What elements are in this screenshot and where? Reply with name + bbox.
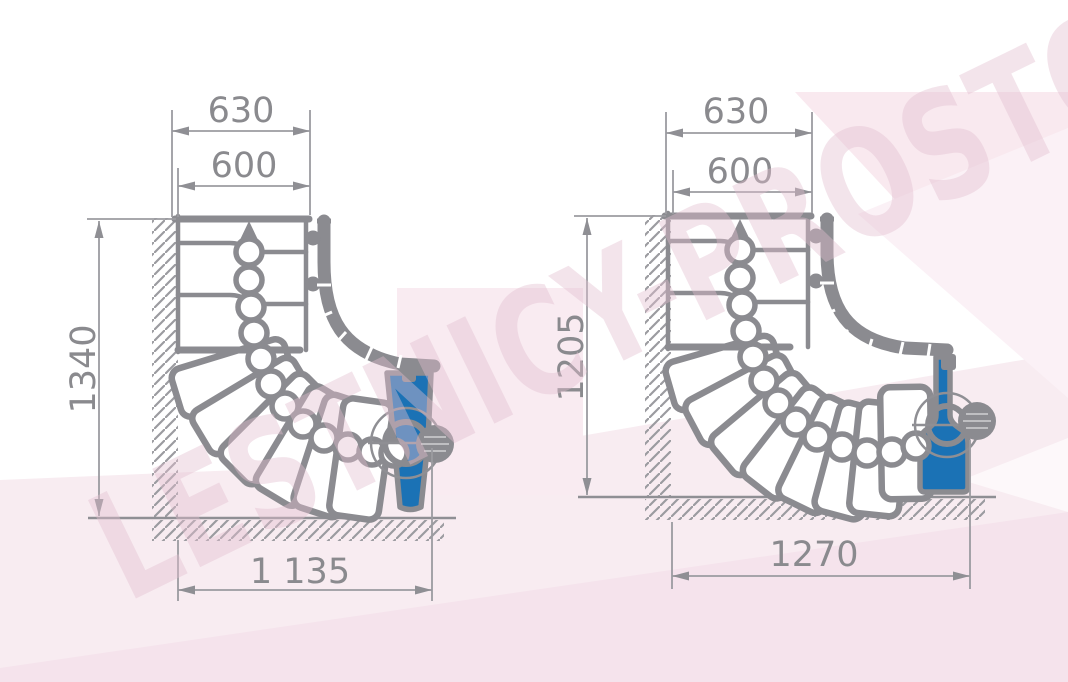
dim-height-label: 1205 [552,312,592,401]
dim-width-label: 1 135 [250,552,350,592]
newel-ball [958,402,996,440]
dim-height-label: 1340 [64,324,104,413]
stringer-knob [306,231,321,246]
staircase-drawing-page: 630 600 1340 1 135 [0,0,1068,682]
dim-top-outer-label: 630 [703,92,770,132]
stringer-knob [809,274,824,289]
dim-width-label: 1270 [769,535,858,575]
dim-top-inner-label: 600 [211,146,278,186]
ground-hatch [152,520,444,541]
dim-top-inner-label: 600 [707,152,774,192]
stringer-knob [809,229,824,244]
staircase-diagram-canvas: 630 600 1340 1 135 [0,0,1068,682]
dim-top-outer-label: 630 [208,91,275,131]
newel-ball [416,425,454,463]
